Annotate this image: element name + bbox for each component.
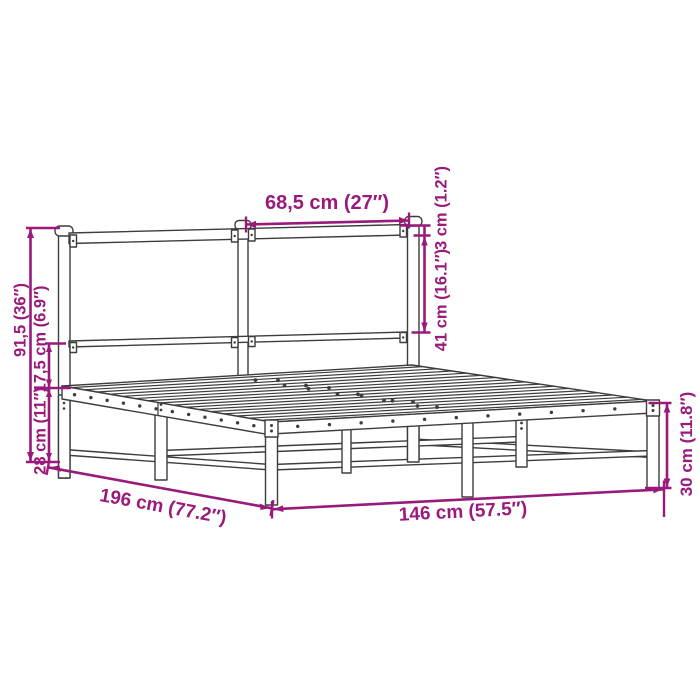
under-bed-clearance-label: 28 cm (11″) — [32, 387, 50, 475]
corner-bracket-foot-front — [265, 420, 278, 437]
headboard-rail-gap-label: 41 cm (16.1″) — [433, 249, 451, 351]
headboard-panel-width-label: 68,5 cm (27″) — [265, 192, 389, 214]
frame-length-label: 196 cm (77.2″) — [98, 485, 228, 529]
diagram-canvas: 68,5 cm (27″) 3 cm (1.2″) 41 cm (16.1″) … — [0, 0, 700, 700]
headboard — [55, 217, 422, 479]
bed-frame-dimension-diagram: 68,5 cm (27″) 3 cm (1.2″) 41 cm (16.1″) … — [0, 0, 700, 700]
headboard-height-label: 91,5 (36″) — [12, 283, 30, 357]
leg-foot-back — [647, 413, 659, 488]
headboard-rail-thickness-label: 3 cm (1.2″) — [433, 166, 451, 250]
rail-to-mid-rail-label: 17,5 cm (6.9″) — [32, 286, 50, 393]
headboard-post-middle — [238, 228, 248, 390]
leg-back-mid — [516, 417, 527, 467]
leg-foot-front — [266, 428, 278, 505]
foot-end-height-label: 30 cm (11.8″) — [677, 392, 696, 497]
